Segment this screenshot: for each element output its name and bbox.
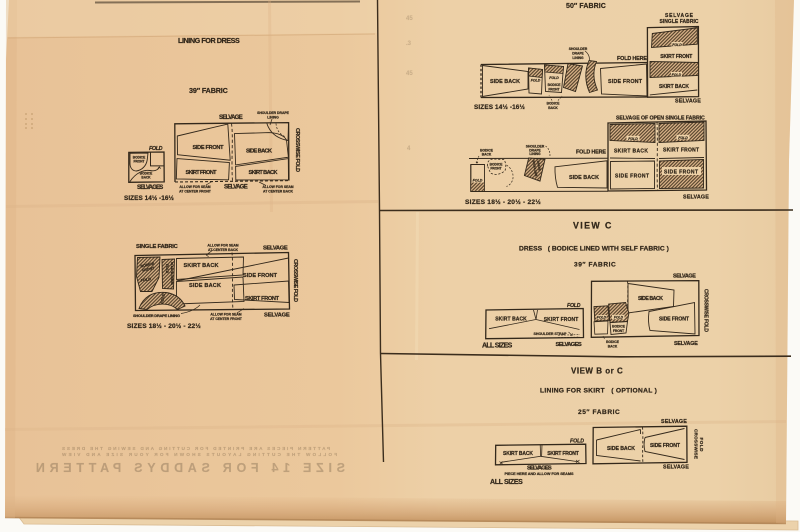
svg-text:LINING FOR SKIRT ( OPTIONAL: LINING FOR SKIRT ( OPTIONAL ) — [540, 388, 657, 395]
svg-text:FOLD: FOLD — [628, 137, 638, 141]
svg-text:SIDE FRONT: SIDE FRONT — [243, 273, 278, 279]
svg-text:SKIRT BACK: SKIRT BACK — [659, 84, 689, 90]
svg-text:CROSSWISE FOLD: CROSSWISE FOLD — [703, 289, 709, 332]
svg-text:45: 45 — [406, 16, 413, 22]
svg-text:FOLD: FOLD — [672, 43, 682, 47]
svg-text:SIDE BACK: SIDE BACK — [569, 175, 599, 181]
svg-text:BACK: BACK — [548, 106, 558, 110]
svg-text:SKIRT FRONT: SKIRT FRONT — [186, 170, 218, 176]
svg-text:SKIRT BACK: SKIRT BACK — [184, 263, 219, 269]
svg-text:AT CENTER BACK: AT CENTER BACK — [263, 189, 293, 193]
svg-text:SELVAGE: SELVAGE — [683, 195, 709, 201]
svg-text:DRAPE: DRAPE — [572, 51, 584, 55]
svg-text:SIZE 14 FOR SADDYS PATTERN: SIZE 14 FOR SADDYS PATTERN — [35, 461, 345, 475]
svg-text:FOLD: FOLD — [678, 136, 688, 140]
svg-text:BODICE: BODICE — [548, 83, 562, 87]
svg-text:BACK: BACK — [608, 344, 618, 348]
svg-text:BODICE: BODICE — [547, 102, 561, 106]
svg-text:BODICE: BODICE — [606, 340, 620, 344]
svg-text:FOLD: FOLD — [149, 146, 163, 152]
svg-text:FOLD HERE: FOLD HERE — [617, 56, 647, 62]
svg-text:CROSSWISE: CROSSWISE — [694, 429, 699, 459]
svg-text:SELVAGE: SELVAGE — [674, 341, 698, 347]
svg-text:SIZES 18½ - 20½ - 22½: SIZES 18½ - 20½ - 22½ — [127, 322, 201, 330]
svg-text:SKIRT BACK: SKIRT BACK — [614, 149, 648, 155]
svg-text:SELVAGES: SELVAGES — [527, 465, 552, 471]
svg-text:SKIRT FRONT: SKIRT FRONT — [547, 451, 579, 457]
svg-text:SELVAGE OF OPEN SINGLE FABRIC: SELVAGE OF OPEN SINGLE FABRIC — [616, 116, 705, 122]
svg-text:AT CENTER FRONT: AT CENTER FRONT — [210, 317, 243, 321]
svg-text:SHOULDER DRAPE LINING: SHOULDER DRAPE LINING — [133, 313, 180, 318]
svg-text:FOLD HERE: FOLD HERE — [576, 150, 606, 156]
svg-text:SINGLE FABRIC: SINGLE FABRIC — [660, 19, 699, 25]
svg-text:BACK: BACK — [482, 152, 492, 156]
svg-text:PIECE HERE AND ALLOW FOR SEAMS: PIECE HERE AND ALLOW FOR SEAMS — [505, 472, 574, 476]
svg-text:SELVAGE: SELVAGE — [665, 13, 694, 19]
svg-text:SIDE BACK: SIDE BACK — [638, 296, 663, 302]
svg-text:SIZES 14½ -16½: SIZES 14½ -16½ — [124, 194, 174, 202]
svg-text:FRONT: FRONT — [490, 167, 501, 171]
svg-text:SIDE FRONT: SIDE FRONT — [615, 174, 649, 180]
svg-text:39″ FABRIC: 39″ FABRIC — [189, 86, 228, 95]
svg-text:SIDE FRONT: SIDE FRONT — [608, 79, 643, 85]
svg-text:LINING: LINING — [529, 152, 541, 156]
svg-text:ALL SIZES: ALL SIZES — [482, 343, 513, 350]
svg-text:SELVAGE: SELVAGE — [263, 246, 288, 252]
svg-text:BACK: BACK — [141, 176, 151, 180]
svg-text:SINGLE FABRIC: SINGLE FABRIC — [136, 244, 179, 250]
svg-text:CROSSWISE FOLD: CROSSWISE FOLD — [294, 128, 300, 172]
svg-text:LINING: LINING — [572, 56, 584, 60]
svg-text:VIEW C: VIEW C — [573, 221, 612, 231]
svg-text:BODICE: BODICE — [612, 325, 626, 329]
svg-text:SKIRT BACK: SKIRT BACK — [249, 170, 278, 176]
svg-text:FOLD: FOLD — [165, 264, 169, 274]
svg-text:FOLD: FOLD — [672, 73, 682, 77]
svg-text:39″ FABRIC: 39″ FABRIC — [574, 262, 616, 269]
svg-text:AT CENTER FRONT: AT CENTER FRONT — [179, 189, 212, 193]
svg-text:SKIRT FRONT: SKIRT FRONT — [660, 54, 692, 60]
svg-text:ALLOW FOR SEAM: ALLOW FOR SEAM — [207, 244, 238, 248]
svg-text:SIDE FRONT: SIDE FRONT — [664, 170, 698, 176]
svg-text:DRESS ( BODICE LINED WITH SE: DRESS ( BODICE LINED WITH SELF FABRIC ) — [519, 246, 669, 253]
svg-text:SELVAGE: SELVAGE — [224, 185, 248, 191]
svg-text:SKIRT BACK: SKIRT BACK — [495, 316, 527, 322]
svg-text:SIZES 14½ -16½: SIZES 14½ -16½ — [474, 103, 525, 111]
svg-text:.3: .3 — [406, 41, 412, 47]
svg-text:FRONT: FRONT — [134, 160, 145, 164]
svg-text:SIDE BACK: SIDE BACK — [607, 446, 635, 452]
svg-text:SIDE BACK: SIDE BACK — [189, 283, 221, 289]
svg-text:FOLD: FOLD — [531, 79, 541, 83]
svg-text:SELVAGE: SELVAGE — [673, 274, 696, 280]
svg-text:FOLD: FOLD — [549, 76, 559, 80]
svg-text:FOLD: FOLD — [614, 316, 624, 320]
svg-text:SKIRT FRONT: SKIRT FRONT — [544, 317, 579, 323]
svg-text:SELVAGE: SELVAGE — [264, 313, 290, 319]
svg-text:25″ FABRIC: 25″ FABRIC — [578, 409, 620, 416]
svg-text:VIEW B or C: VIEW B or C — [571, 367, 623, 376]
svg-text:SELVAGE: SELVAGE — [219, 115, 243, 121]
svg-text:SELVAGE: SELVAGE — [661, 419, 687, 425]
svg-text:SELVAGES: SELVAGES — [556, 342, 583, 348]
svg-text:SKIRT FRONT: SKIRT FRONT — [663, 148, 699, 154]
svg-text:FRONT: FRONT — [613, 329, 624, 333]
svg-text:SHOULDER DRAPE: SHOULDER DRAPE — [257, 111, 290, 115]
svg-text:FOLD: FOLD — [597, 316, 607, 320]
svg-text:SIDE BACK: SIDE BACK — [246, 148, 272, 154]
svg-text:SLEEVE LINING: SLEEVE LINING — [170, 262, 174, 286]
svg-text:45: 45 — [406, 71, 413, 77]
svg-text:SIDE FRONT: SIDE FRONT — [650, 443, 681, 449]
svg-text:SIDE FRONT: SIDE FRONT — [193, 145, 225, 151]
svg-text:FOLD: FOLD — [699, 438, 704, 453]
svg-text:CROSSWISE FOLD: CROSSWISE FOLD — [292, 259, 298, 302]
svg-text:SIDE BACK: SIDE BACK — [490, 79, 520, 85]
svg-text:LINING FOR DRESS: LINING FOR DRESS — [178, 36, 240, 45]
svg-text:ALLOW FOR SEAM: ALLOW FOR SEAM — [179, 185, 210, 189]
svg-text:SELVAGE: SELVAGE — [663, 465, 689, 471]
svg-text:FRONT: FRONT — [548, 87, 559, 91]
svg-text:SIZES 18½ - 20½ - 22½: SIZES 18½ - 20½ - 22½ — [465, 198, 541, 206]
svg-text:SIDE FRONT: SIDE FRONT — [659, 317, 690, 323]
svg-text:ALL SIZES: ALL SIZES — [490, 479, 523, 486]
svg-text:SKIRT FRONT: SKIRT FRONT — [245, 296, 280, 302]
svg-text:LINING: LINING — [267, 115, 279, 119]
svg-text:50″ FABRIC: 50″ FABRIC — [566, 3, 606, 10]
svg-text:SKIRT BACK: SKIRT BACK — [503, 451, 533, 457]
svg-text:SHOULDER: SHOULDER — [569, 47, 588, 51]
svg-text:SELVAGES: SELVAGES — [137, 185, 164, 191]
svg-text:ALLOW FOR SEAM: ALLOW FOR SEAM — [262, 185, 293, 189]
svg-text:FOLD: FOLD — [473, 179, 483, 183]
svg-text:SELVAGE: SELVAGE — [675, 99, 701, 105]
